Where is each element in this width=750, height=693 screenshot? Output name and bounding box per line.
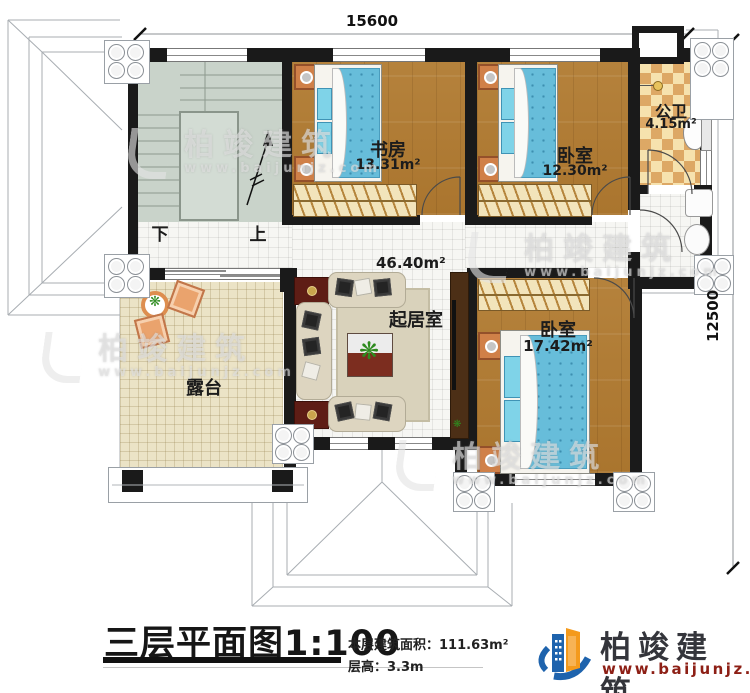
watermark-terrace: 柏竣建筑 www.baijunjz.com [42, 332, 295, 383]
floor-height-label: 层高： [348, 660, 387, 675]
watermark-url: www.baijunjz.com [524, 265, 721, 281]
brand-logo-icon [528, 618, 598, 688]
watermark-text: 柏竣建筑 [98, 335, 295, 365]
floor-height-info: 层高：3.3m [348, 656, 424, 675]
watermark-text: 柏竣建筑 [452, 443, 649, 473]
study-door-arc [422, 177, 460, 215]
living-area: 46.40m² [376, 254, 442, 272]
brand-logo: 柏竣建筑 www.baijunjz.com [528, 618, 746, 688]
watermark-text: 柏竣建筑 [524, 235, 721, 265]
floor-area-label: 本层建筑面积： [348, 638, 439, 653]
watermark-logo-icon [38, 332, 86, 383]
bedroom-top-area: 12.30m² [540, 163, 610, 179]
bedroom-right-door-arc [594, 278, 634, 318]
bedroom-top-door-arc [592, 177, 630, 215]
bedroom-right-area: 17.42m² [523, 337, 593, 355]
watermark-corridor: 柏竣建筑 www.baijunjz.com [468, 232, 721, 283]
bathroom-door-arc [648, 150, 692, 194]
stairs-down-label: 下 [148, 220, 172, 245]
brand-website: www.baijunjz.com [602, 660, 750, 678]
watermark-bedroom: 柏竣建筑 www.baijunjz.com [396, 440, 649, 491]
floor-height-value: 3.3m [387, 660, 424, 675]
floor-area-info: 本层建筑面积：111.63m² [348, 634, 508, 653]
living-label: 起居室 [385, 306, 447, 332]
brand-name: 柏竣建筑 [600, 622, 746, 693]
watermark-logo-icon [124, 128, 172, 179]
floor-area-value: 111.63m² [439, 638, 508, 653]
watermark-url: www.baijunjz.com [184, 161, 381, 177]
stairs-up-label: 上 [246, 220, 270, 245]
watermark-logo-icon [392, 440, 440, 491]
top-dimension-value: 15600 [340, 12, 404, 30]
right-dimension-value: 12500 [704, 282, 724, 342]
watermark-url: www.baijunjz.com [452, 473, 649, 489]
watermark-stairwell: 柏竣建筑 www.baijunjz.com [128, 128, 381, 179]
floor-plan-canvas: ❋ ❋ ❋ 书房 [0, 0, 750, 693]
title-underline [103, 657, 341, 663]
watermark-text: 柏竣建筑 [184, 131, 381, 161]
watermark-url: www.baijunjz.com [98, 365, 295, 381]
watermark-logo-icon [464, 232, 512, 283]
title-underline-light [103, 667, 483, 668]
bathroom-area: 4.15m² [642, 117, 700, 132]
